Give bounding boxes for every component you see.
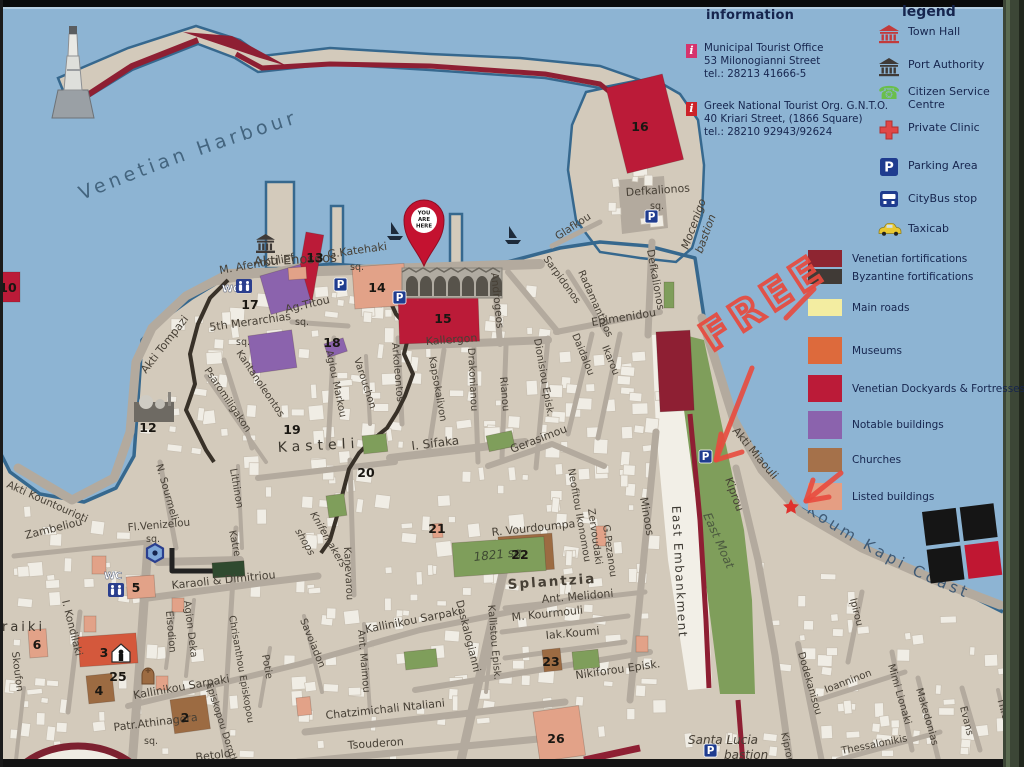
poi-number: 12 [139,420,156,435]
legend-swatch [808,448,842,472]
map-label: sq. [144,736,158,747]
poi-number: 6 [33,637,42,652]
legend-item-label: Taxicab [908,223,994,236]
legend-item-label: Parking Area [908,160,994,173]
poi-number: 22 [511,547,528,562]
svg-text:P: P [884,161,894,176]
legend-title: legend [902,4,956,20]
parking-icon: P [878,158,900,178]
map-label: sq. [236,337,250,348]
legend-panel: legend Town HallPort Authority☎Citizen S… [804,0,1014,520]
legend-item-label: Port Authority [908,59,994,72]
poi-number: 18 [323,335,340,350]
poi-number: 4 [95,683,104,698]
map-label: raiki [2,620,45,635]
legend-item-label: CityBus stop [908,193,994,206]
frame-left [0,0,3,767]
legend-swatch-label: Main roads [852,302,909,314]
poi-number: 23 [542,654,559,669]
info-i-icon: i [686,44,697,58]
legend-swatch [808,337,842,364]
info-i-icon: i [686,102,697,116]
legend-swatch [808,411,842,439]
poi-number: 3 [100,645,109,660]
svg-text:P: P [702,451,710,463]
town-hall-icon [878,24,900,44]
svg-text:ARE: ARE [418,217,430,223]
svg-text:YOU: YOU [417,211,431,217]
info-item: iMunicipal Tourist Office53 Milonogianni… [686,42,824,81]
parking-icon: P [334,278,347,291]
poi-number: 15 [434,311,451,326]
clinic-icon [878,120,900,140]
map-label: sq. [350,262,364,273]
map-label: sq. [146,534,160,545]
venizelou-square-dot [152,550,157,555]
poi-number: 14 [368,280,386,295]
parking-icon: P [704,744,717,757]
parking-icon: P [645,210,658,223]
map-sign-photo: Akti EnoseosM. AfentouliefG.Katehakisq.A… [0,0,1024,767]
legend-swatch-label: Byzantine fortifications [852,271,973,283]
legend-swatch-label: Venetian Dockyards & Fortresses [852,383,1024,395]
parking-icon: P [699,450,712,463]
phone-icon: ☎ [878,84,900,104]
poi-number: 25 [109,669,126,684]
poi-number: 19 [283,422,300,437]
legend-swatch [808,299,842,316]
poi-number: 2 [181,710,190,725]
legend-swatch [808,250,842,267]
svg-text:WC: WC [104,571,122,582]
legend-item-label: Private Clinic [908,122,994,135]
legend-swatch-label: Museums [852,345,902,357]
legend-swatch-label: Churches [852,454,901,466]
legend-item-label: Town Hall [908,26,994,39]
bus-icon [878,191,900,211]
legend-swatch [808,375,842,402]
poi-number: 21 [428,521,445,536]
svg-text:P: P [707,745,715,757]
svg-text:P: P [648,211,656,223]
legend-swatch-label: Listed buildings [852,491,934,503]
legend-swatch [808,483,842,510]
map-label: sq. [295,317,309,328]
poi-number: 5 [132,580,141,595]
legend-swatch [808,269,842,284]
legend-swatch-label: Venetian fortifications [852,253,967,265]
poi-number: 17 [241,297,258,312]
svg-text:P: P [396,292,404,304]
taxi-icon [878,221,900,241]
poi-number: 16 [631,119,649,134]
legend-swatch-label: Notable buildings [852,419,944,431]
svg-text:HERE: HERE [416,224,432,230]
poi-number: 26 [547,731,565,746]
svg-text:P: P [337,279,345,291]
poi-number: 20 [357,465,375,480]
map-label: Santa Lucia [688,733,758,747]
legend-item-label: Citizen Service Centre [908,86,994,111]
dockyards-photo [402,268,502,298]
port-authority-icon [878,57,900,77]
church-icon [142,668,154,684]
parking-icon: P [393,291,406,304]
frame-bottom [0,759,1024,767]
poi-number: 13 [306,250,323,265]
